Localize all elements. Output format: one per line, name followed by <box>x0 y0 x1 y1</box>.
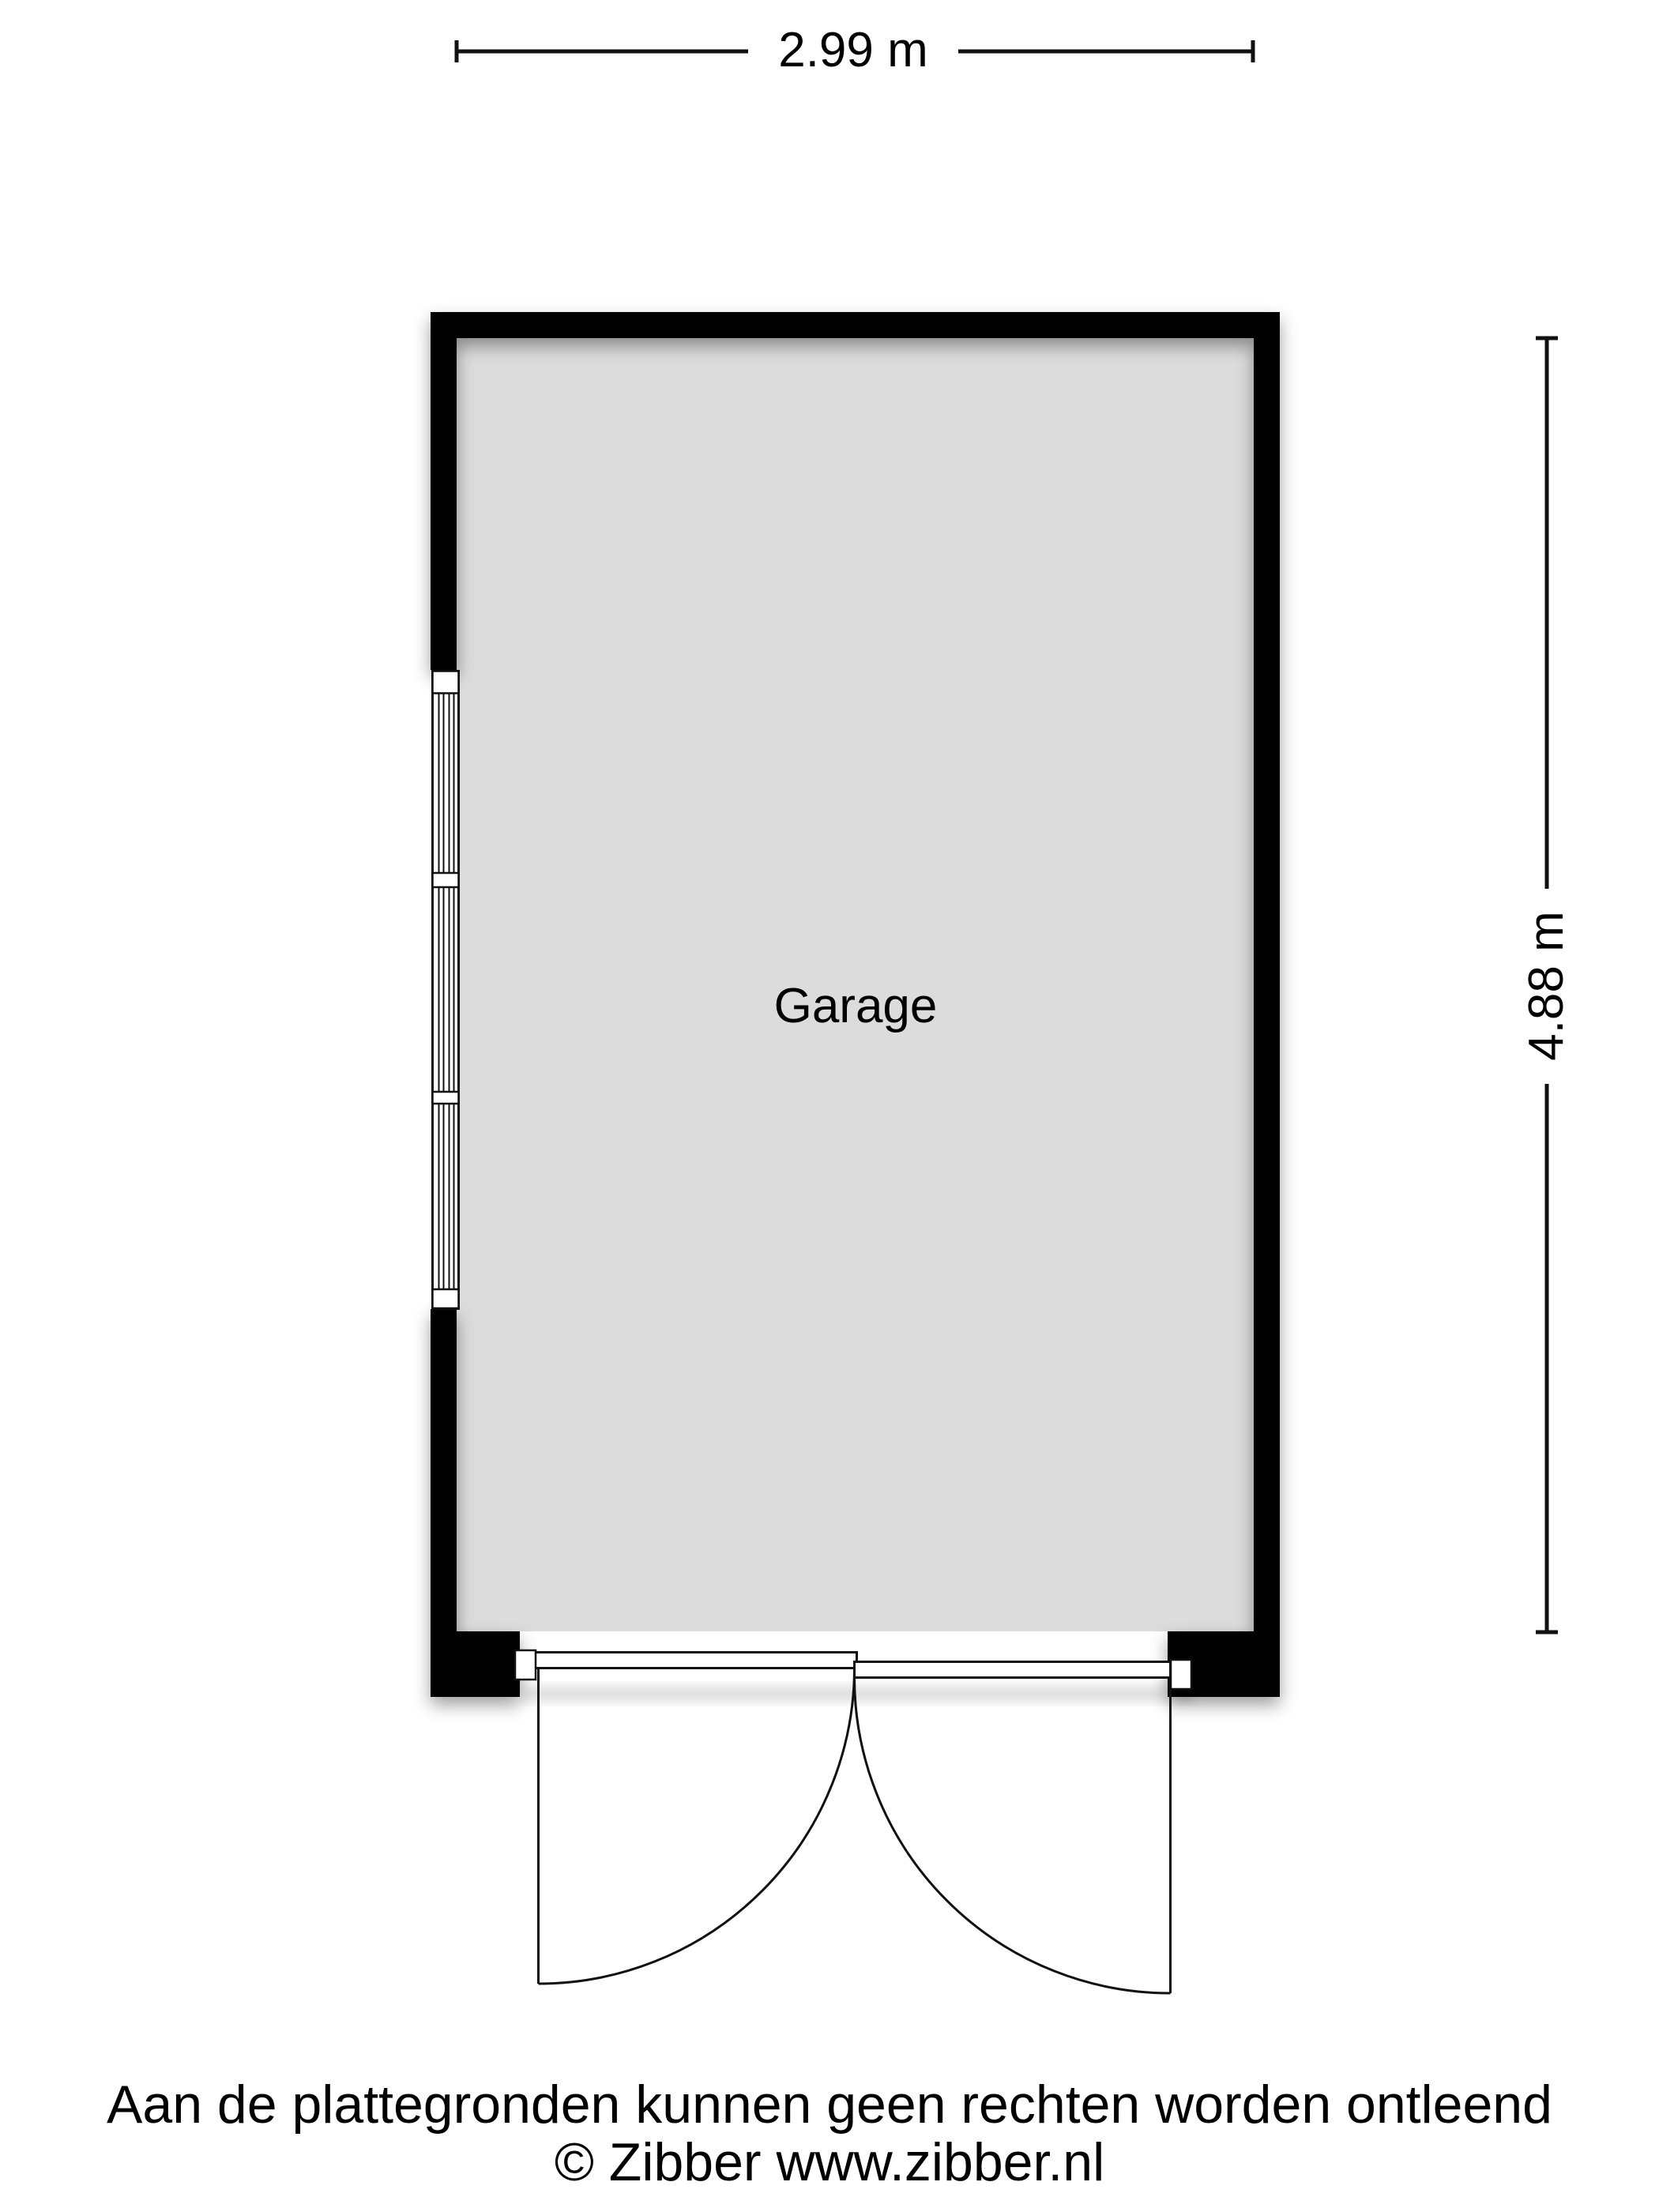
height-dimension-label: 4.88 m <box>1522 911 1571 1061</box>
wall-corner-bottom-left <box>431 1631 520 1697</box>
door-jamb-right <box>1171 1660 1191 1689</box>
wall-top <box>431 312 1280 338</box>
door-swing-arc-right <box>855 1677 1171 1993</box>
door-leaf-right <box>855 1662 1171 1678</box>
wall-left-upper <box>431 312 457 670</box>
window-left <box>433 671 459 1309</box>
door-swing-arc-left <box>539 1668 855 1984</box>
floorplan-drawing <box>0 0 1659 2212</box>
disclaimer-text: Aan de plattegronden kunnen geen rechten… <box>0 2076 1659 2134</box>
wall-right <box>1254 312 1280 1697</box>
door-jamb-left <box>515 1650 536 1680</box>
copyright-text: © Zibber www.zibber.nl <box>0 2134 1659 2191</box>
double-door <box>515 1650 1191 1993</box>
footer: Aan de plattegronden kunnen geen rechten… <box>0 2076 1659 2191</box>
door-leaf-left <box>535 1653 857 1668</box>
width-dimension-label: 2.99 m <box>778 26 928 75</box>
floorplan-canvas: Garage 2.99 m 4.88 m Aan de plattegronde… <box>0 0 1659 2212</box>
door-shadow <box>521 1687 1193 1700</box>
room-label: Garage <box>774 982 938 1031</box>
window-frame <box>433 671 459 1309</box>
